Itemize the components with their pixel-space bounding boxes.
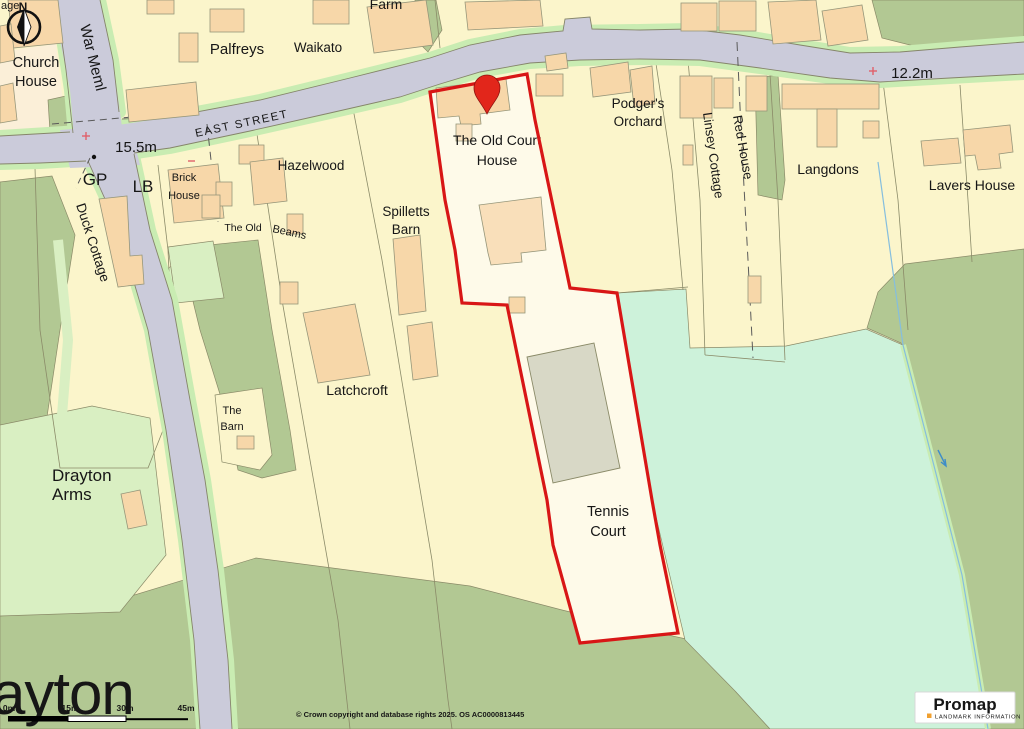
label-lavers-house: Lavers House <box>929 177 1016 193</box>
spot-dot <box>92 155 96 159</box>
scale-tick-30: 30m <box>116 703 133 713</box>
label-old-court-house-1: The Old Court <box>453 132 541 148</box>
map-screenshot: age N Church House War Meml Palfreys Wai… <box>0 0 1024 729</box>
logo-dot-icon <box>927 714 932 719</box>
label-the-old: The Old <box>224 222 262 234</box>
label-tennis-court-1: Tennis <box>587 504 629 520</box>
label-church-house-1: Church <box>13 55 60 71</box>
label-cutoff: age <box>1 0 19 12</box>
promap-logo: Promap LANDMARK INFORMATION <box>915 692 1021 723</box>
promap-tagline: LANDMARK INFORMATION <box>935 715 1021 721</box>
label-spilletts-barn-2: Barn <box>392 222 421 237</box>
scale-tick-15: 15m <box>61 703 78 713</box>
label-lb: LB <box>133 177 154 196</box>
label-brick-house-2: House <box>168 190 200 202</box>
label-spot-east: 12.2m <box>891 65 933 82</box>
label-farm: Farm <box>370 0 403 12</box>
label-gp: GP <box>83 170 108 189</box>
label-the-barn-2: Barn <box>220 421 243 433</box>
label-drayton-arms-1: Drayton <box>52 466 112 485</box>
copyright-notice: © Crown copyright and database rights 20… <box>296 710 524 719</box>
label-langdons: Langdons <box>797 161 859 177</box>
label-old-court-house-2: House <box>477 152 518 168</box>
label-waikato: Waikato <box>294 40 342 55</box>
label-tennis-court-2: Court <box>590 524 625 540</box>
label-podgers-orchard-1: Podger's <box>612 96 665 111</box>
label-the-barn-1: The <box>223 405 242 417</box>
label-spilletts-barn-1: Spilletts <box>382 204 430 219</box>
label-podgers-orchard-2: Orchard <box>614 114 663 129</box>
promap-brand: Promap <box>933 695 996 714</box>
map-canvas[interactable]: age N Church House War Meml Palfreys Wai… <box>0 0 1024 729</box>
label-church-house-2: House <box>15 74 57 90</box>
label-palfreys: Palfreys <box>210 41 264 58</box>
label-brick-house-1: Brick <box>172 172 197 184</box>
label-spot-junction: 15.5m <box>115 139 157 156</box>
scale-tick-0: 0m <box>3 703 16 713</box>
label-drayton-arms-2: Arms <box>52 485 92 504</box>
label-latchcroft: Latchcroft <box>326 382 388 398</box>
scale-tick-45: 45m <box>177 703 194 713</box>
label-hazelwood: Hazelwood <box>278 158 345 173</box>
